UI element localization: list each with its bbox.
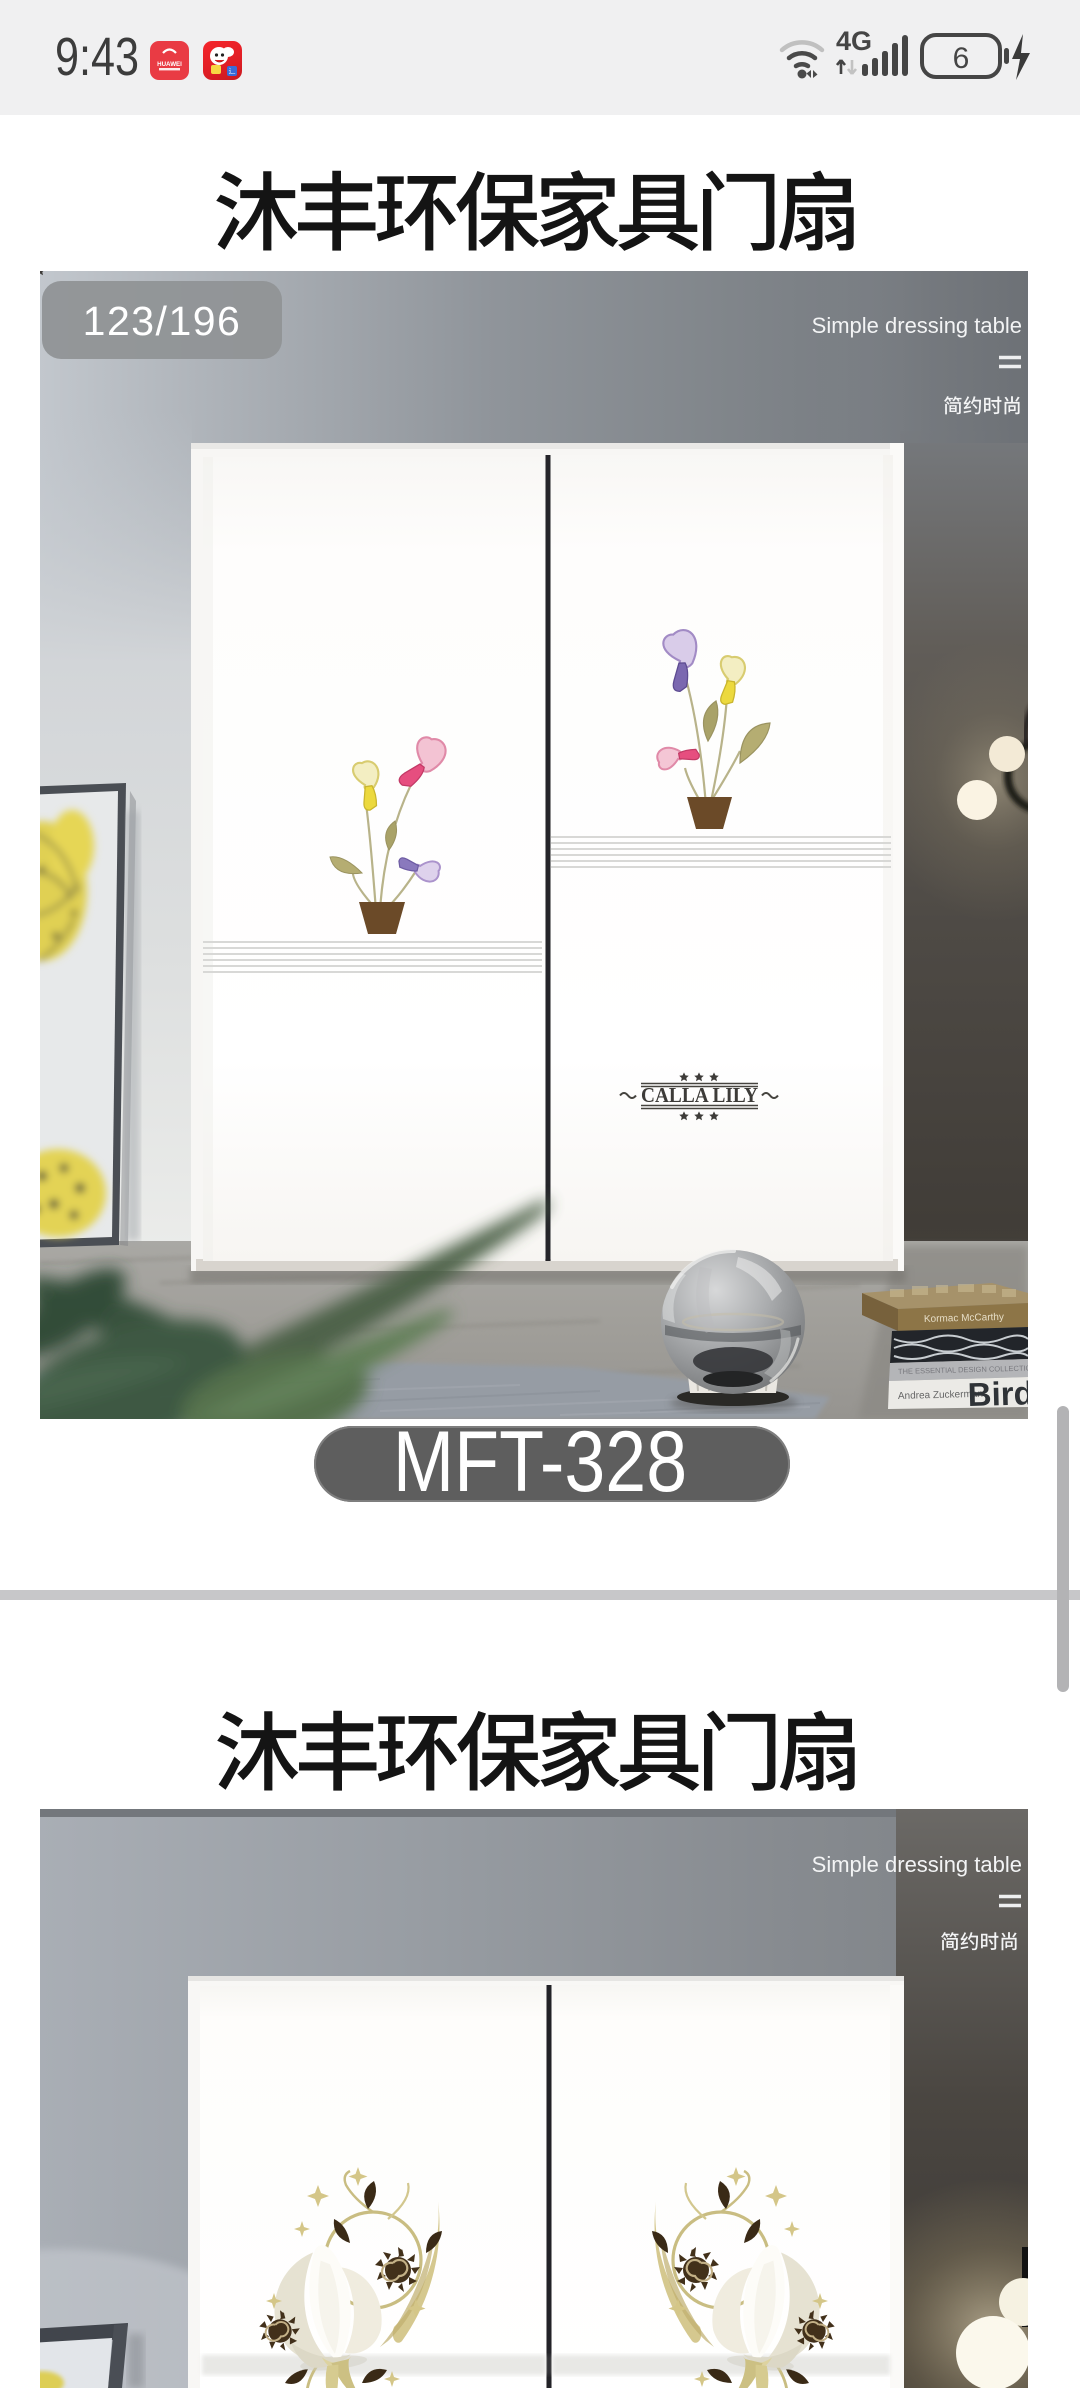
svg-text:Bird: Bird [967, 1374, 1028, 1413]
svg-text:CALLA LILY: CALLA LILY [641, 1083, 758, 1107]
svg-text:Simple dressing table: Simple dressing table [812, 1852, 1022, 1877]
svg-text:Simple dressing table: Simple dressing table [812, 313, 1022, 338]
svg-text:123/196: 123/196 [83, 298, 242, 344]
svg-text:Kormac McCarthy: Kormac McCarthy [924, 1312, 1004, 1325]
